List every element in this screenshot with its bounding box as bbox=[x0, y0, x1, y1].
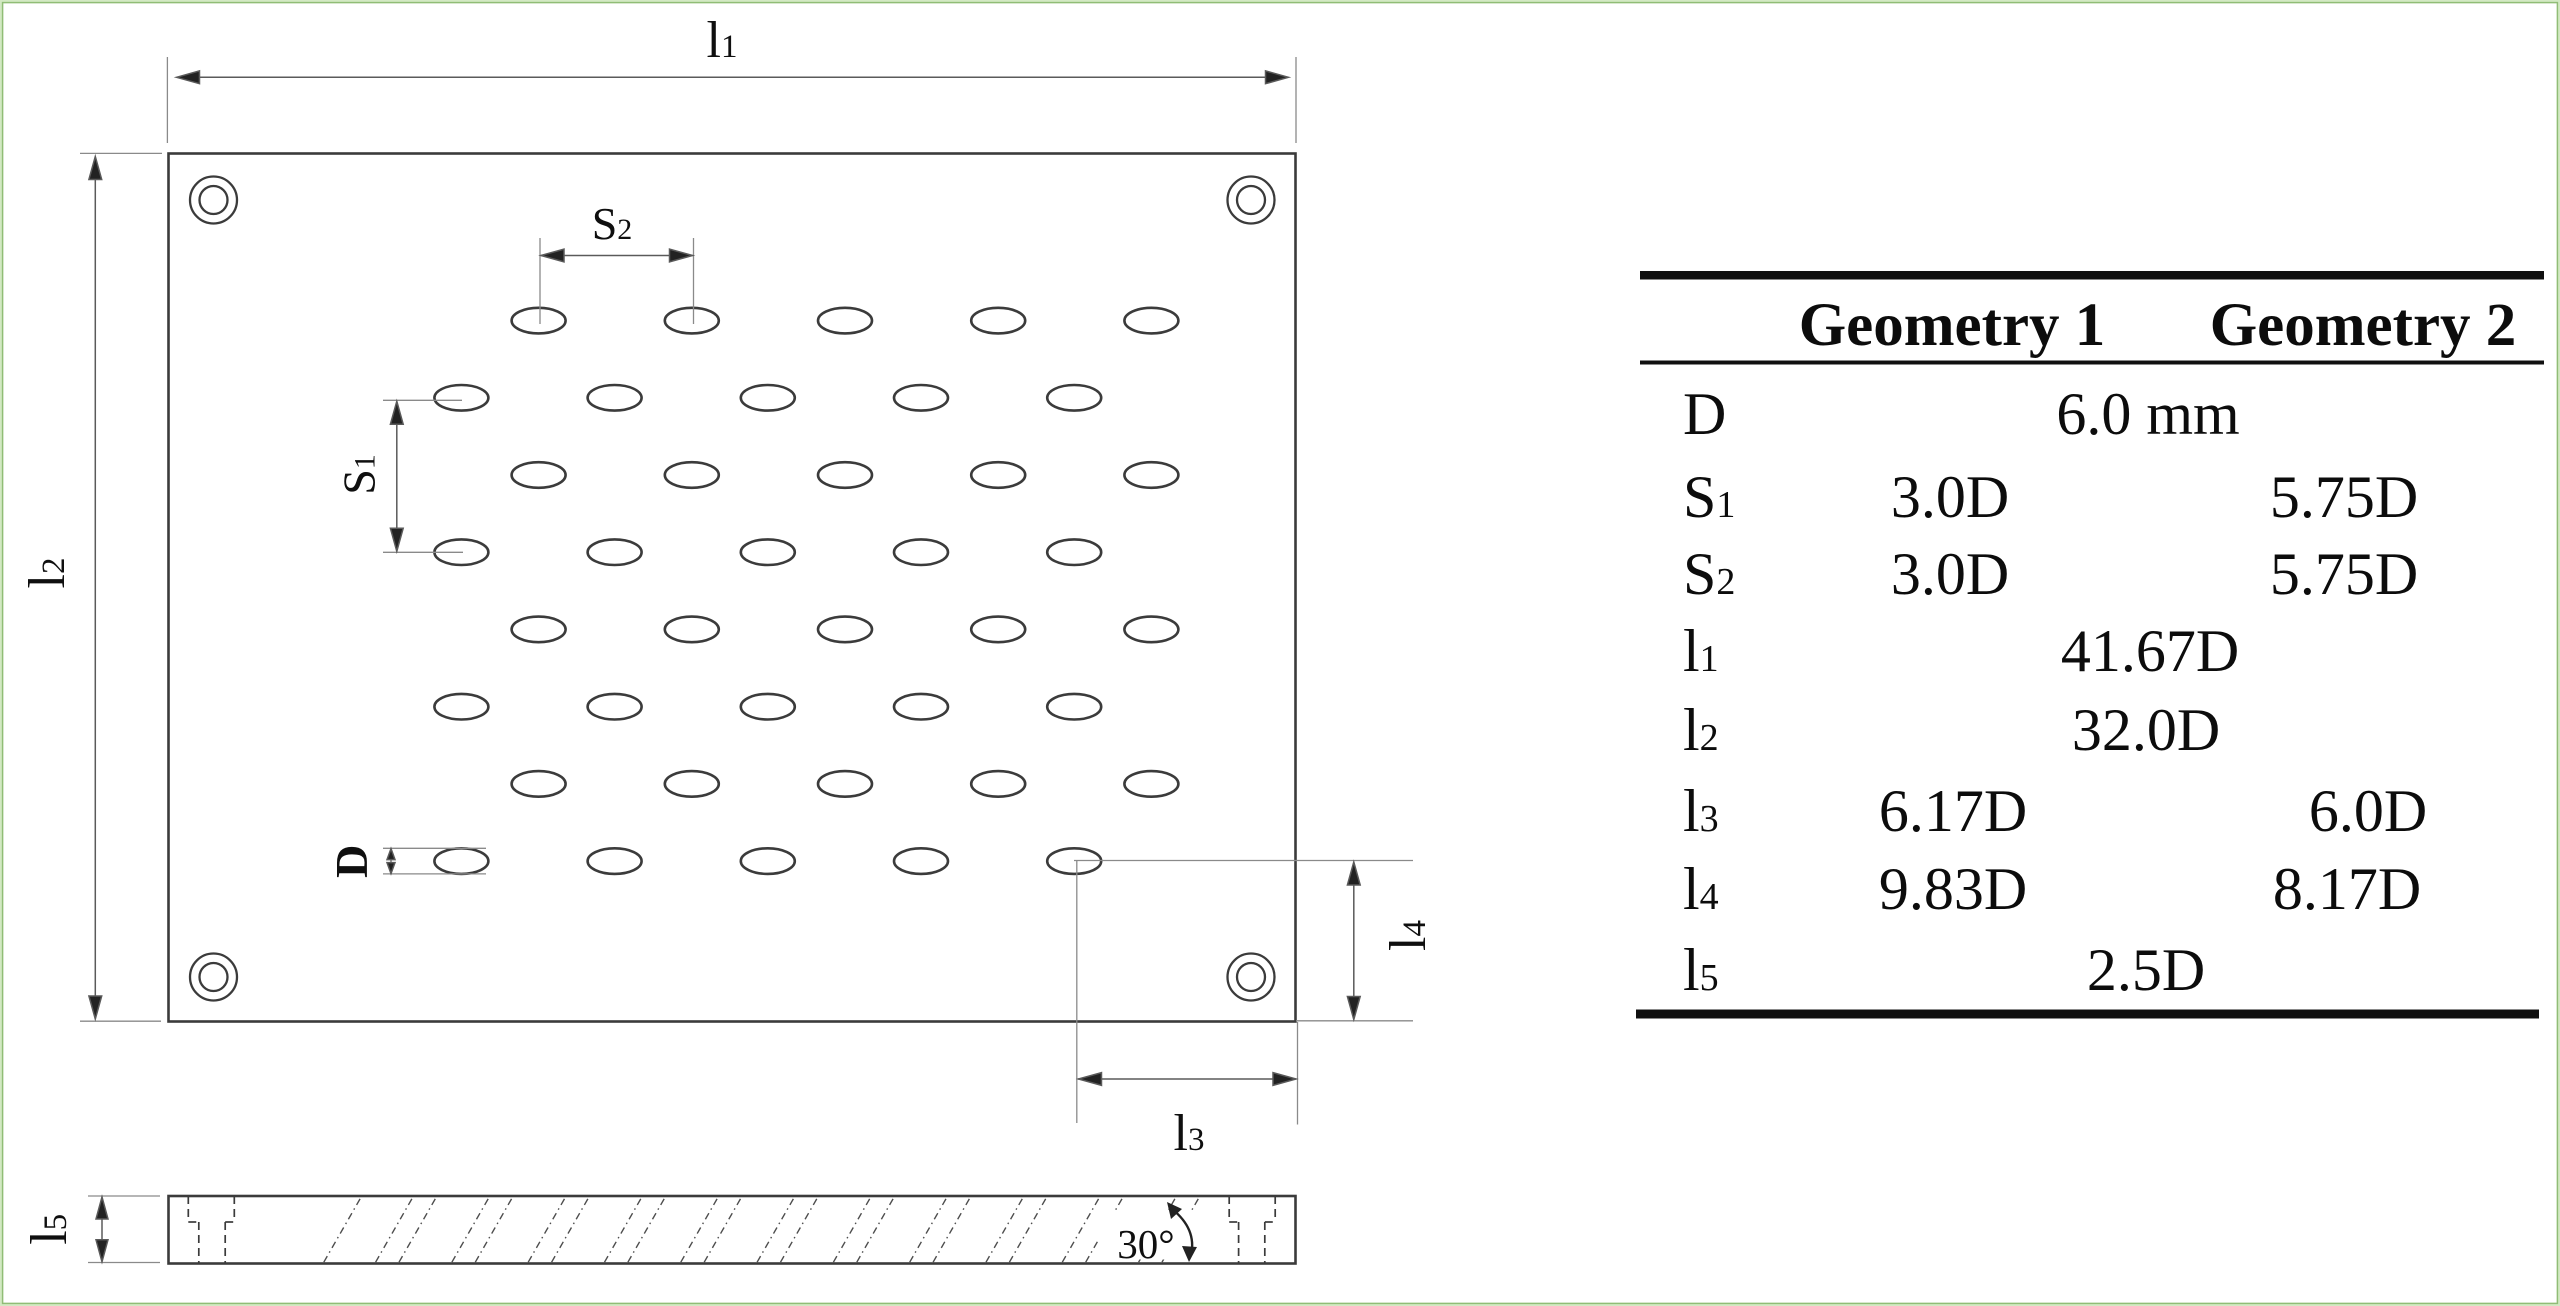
svg-text:32.0D: 32.0D bbox=[2072, 697, 2220, 763]
svg-text:D: D bbox=[1683, 381, 1726, 447]
svg-text:5.75D: 5.75D bbox=[2270, 541, 2418, 607]
svg-text:30°: 30° bbox=[1117, 1221, 1174, 1267]
svg-text:9.83D: 9.83D bbox=[1879, 856, 2027, 922]
svg-text:D: D bbox=[326, 845, 377, 878]
svg-text:Geometry 2: Geometry 2 bbox=[2210, 292, 2517, 359]
svg-text:6.0 mm: 6.0 mm bbox=[2056, 381, 2239, 447]
svg-text:6.17D: 6.17D bbox=[1879, 778, 2027, 844]
svg-text:3.0D: 3.0D bbox=[1891, 464, 2009, 530]
svg-text:2.5D: 2.5D bbox=[2087, 937, 2205, 1003]
svg-text:5.75D: 5.75D bbox=[2270, 464, 2418, 530]
svg-text:41.67D: 41.67D bbox=[2061, 618, 2239, 684]
svg-text:8.17D: 8.17D bbox=[2273, 856, 2421, 922]
svg-text:Geometry 1: Geometry 1 bbox=[1799, 292, 2106, 359]
svg-text:3.0D: 3.0D bbox=[1891, 541, 2009, 607]
svg-text:6.0D: 6.0D bbox=[2309, 778, 2427, 844]
